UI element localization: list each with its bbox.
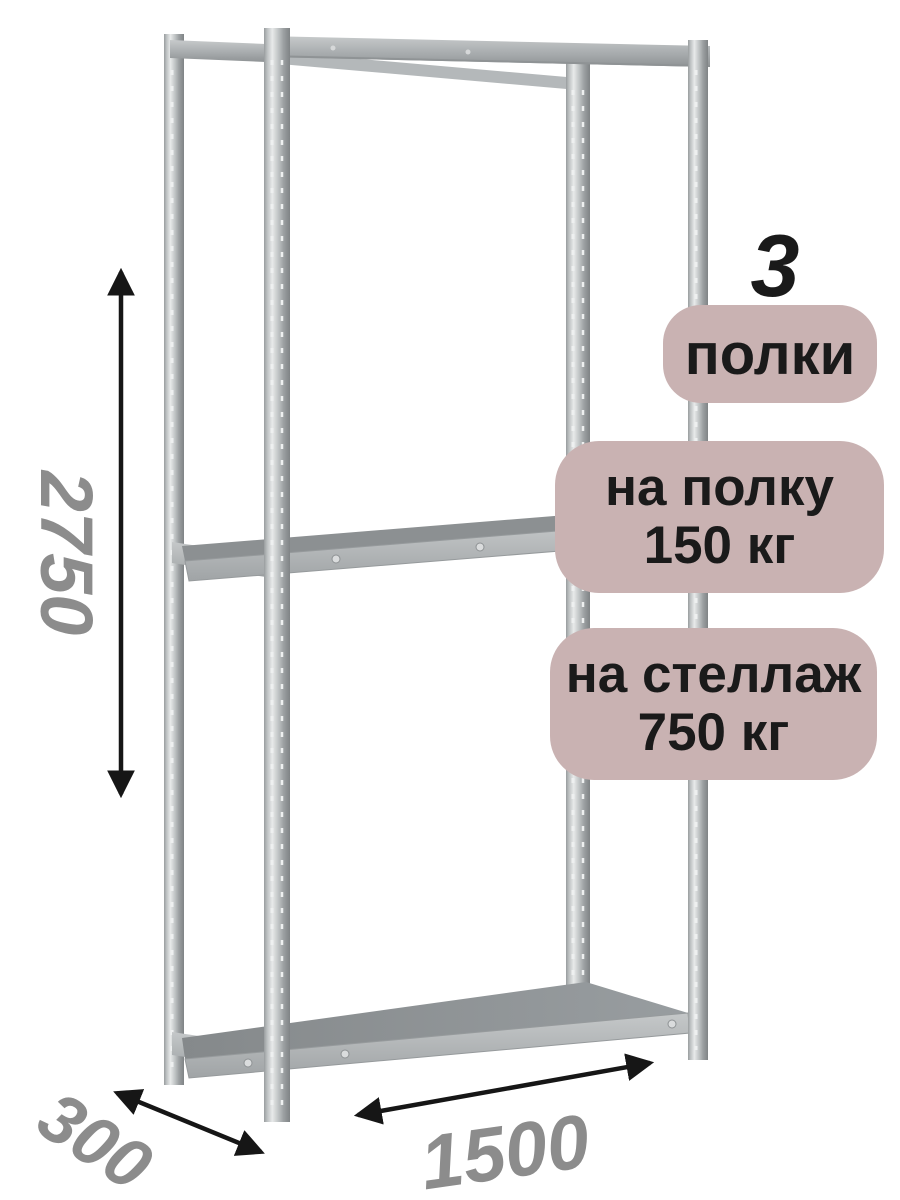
- screw-icon: [341, 1050, 349, 1058]
- depth-arrow-icon: [117, 1093, 261, 1152]
- screw-icon: [332, 555, 340, 563]
- shelf-count-number: 3: [705, 216, 845, 316]
- screw-icon: [244, 1059, 252, 1067]
- per-rack-load-line2: 750 кг: [638, 704, 790, 762]
- shelf-count-badge-label: полки: [685, 321, 856, 388]
- product-image: 2750 300 1500 3 полки на полку 150 кг на…: [0, 0, 900, 1200]
- screw-icon: [331, 46, 336, 51]
- shelving-rack-graphic: [0, 0, 900, 1200]
- top-shelf-side-beam: [170, 40, 266, 62]
- screw-icon: [476, 543, 484, 551]
- screw-icon: [466, 50, 471, 55]
- per-shelf-load-line1: на полку: [605, 459, 834, 517]
- width-arrow-icon: [358, 1063, 650, 1115]
- per-rack-load-badge: на стеллаж 750 кг: [550, 628, 877, 780]
- shelf-count-badge: полки: [663, 305, 877, 403]
- per-rack-load-line1: на стеллаж: [566, 646, 862, 704]
- bottom-shelf: [172, 982, 690, 1078]
- per-shelf-load-badge: на полку 150 кг: [555, 441, 884, 593]
- top-shelf: [170, 36, 710, 67]
- front-left-post: [264, 28, 290, 1122]
- screw-icon: [668, 1020, 676, 1028]
- per-shelf-load-line2: 150 кг: [644, 517, 796, 575]
